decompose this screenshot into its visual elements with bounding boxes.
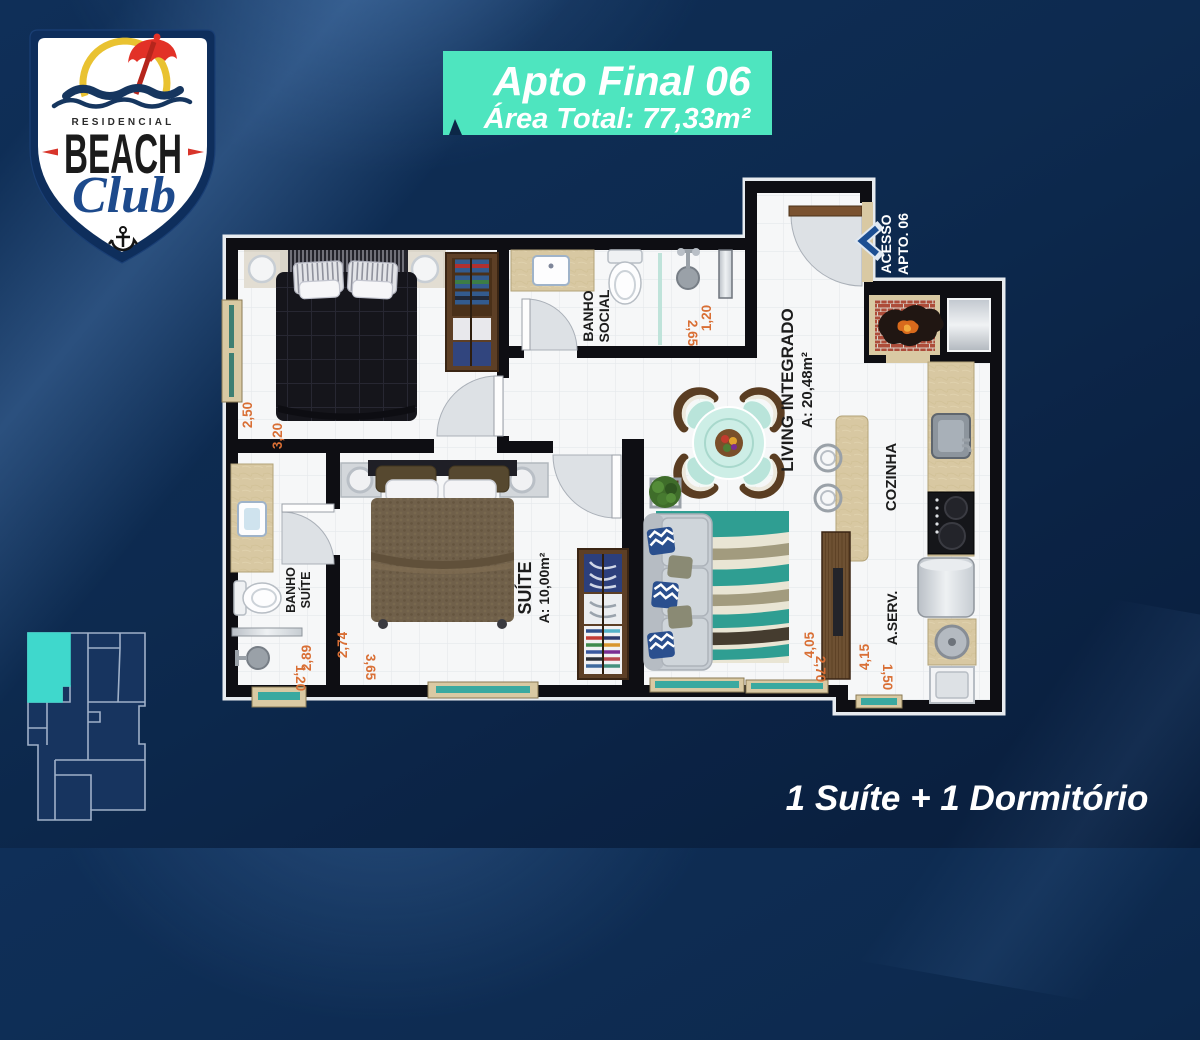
svg-text:Área Total: 77,33m²: Área Total: 77,33m² — [483, 102, 752, 135]
svg-text:ACESSO: ACESSO — [878, 214, 894, 273]
svg-text:1 Suíte + 1 Dormitório: 1 Suíte + 1 Dormitório — [786, 779, 1149, 818]
svg-text:BANHO: BANHO — [284, 567, 298, 613]
svg-text:SUÍTE: SUÍTE — [514, 561, 535, 614]
svg-text:A: 10,00m²: A: 10,00m² — [536, 552, 552, 623]
svg-text:SOCIAL: SOCIAL — [596, 289, 612, 342]
svg-text:Apto Final 06: Apto Final 06 — [492, 58, 752, 104]
svg-text:APTO. 06: APTO. 06 — [895, 213, 911, 275]
svg-text:1,20: 1,20 — [699, 305, 714, 331]
svg-text:4,05: 4,05 — [802, 631, 817, 658]
svg-text:2,50: 2,50 — [240, 402, 255, 428]
svg-text:2,65: 2,65 — [685, 320, 700, 347]
svg-text:3,20: 3,20 — [270, 423, 285, 449]
svg-text:A: 20,48m²: A: 20,48m² — [799, 352, 816, 428]
svg-text:BANHO: BANHO — [580, 290, 596, 341]
svg-text:LIVING INTEGRADO: LIVING INTEGRADO — [778, 308, 797, 471]
svg-text:A.SERV.: A.SERV. — [884, 591, 900, 645]
svg-text:1,20: 1,20 — [293, 665, 308, 691]
svg-text:4,15: 4,15 — [857, 643, 872, 670]
svg-text:Club: Club — [72, 167, 176, 224]
svg-text:3,65: 3,65 — [363, 654, 378, 681]
svg-text:SUÍTE: SUÍTE — [298, 572, 313, 609]
svg-text:COZINHA: COZINHA — [883, 443, 900, 511]
svg-text:2,70: 2,70 — [813, 656, 828, 682]
svg-text:2,74: 2,74 — [335, 631, 350, 658]
svg-text:1,50: 1,50 — [880, 664, 895, 690]
